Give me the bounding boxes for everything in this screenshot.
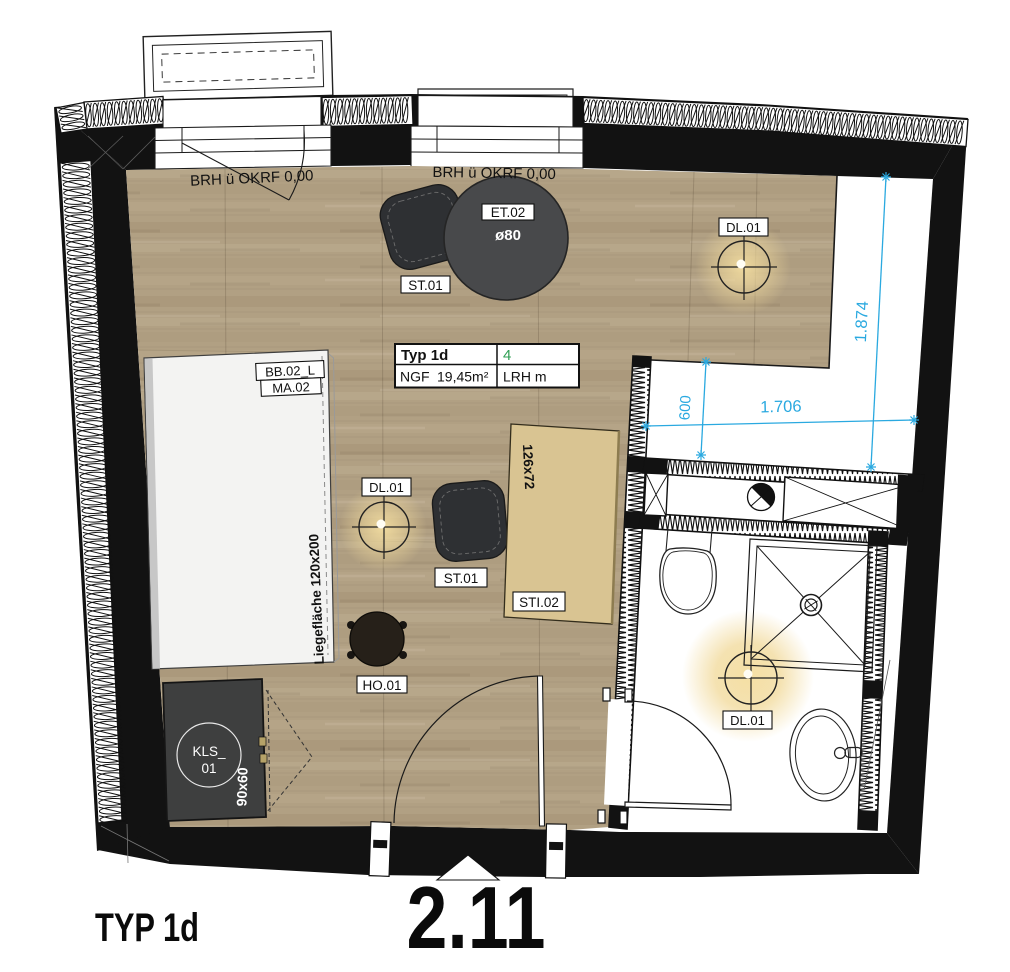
svg-text:ST.01: ST.01 [408, 278, 443, 293]
svg-text:KLS_: KLS_ [192, 744, 226, 759]
svg-text:01: 01 [201, 761, 216, 776]
svg-text:BB.02_L: BB.02_L [265, 362, 315, 379]
svg-text:DL.01: DL.01 [369, 480, 404, 495]
svg-text:ST.01: ST.01 [444, 571, 479, 586]
svg-text:4: 4 [503, 347, 511, 364]
svg-text:STI.02: STI.02 [519, 595, 559, 610]
svg-text:1.874: 1.874 [852, 301, 872, 343]
svg-text:1.706: 1.706 [760, 398, 802, 417]
svg-text:DL.01: DL.01 [726, 220, 761, 235]
svg-text:DL.01: DL.01 [730, 713, 765, 728]
svg-text:ø80: ø80 [495, 227, 521, 244]
svg-text:90x60: 90x60 [233, 767, 250, 807]
svg-text:BRH ü OKRF 0,00: BRH ü OKRF 0,00 [432, 164, 556, 183]
svg-text:TYP 1d: TYP 1d [95, 906, 199, 950]
svg-text:HO.01: HO.01 [362, 678, 401, 693]
svg-text:LRH m: LRH m [503, 369, 547, 385]
svg-text:ET.02: ET.02 [491, 205, 526, 220]
svg-text:2.11: 2.11 [407, 868, 546, 967]
svg-text:600: 600 [676, 395, 694, 421]
svg-text:Typ 1d: Typ 1d [401, 347, 448, 364]
svg-text:19,45m²: 19,45m² [437, 369, 489, 385]
svg-text:MA.02: MA.02 [272, 379, 310, 396]
svg-text:NGF: NGF [400, 369, 430, 385]
svg-text:126x72: 126x72 [520, 444, 537, 490]
